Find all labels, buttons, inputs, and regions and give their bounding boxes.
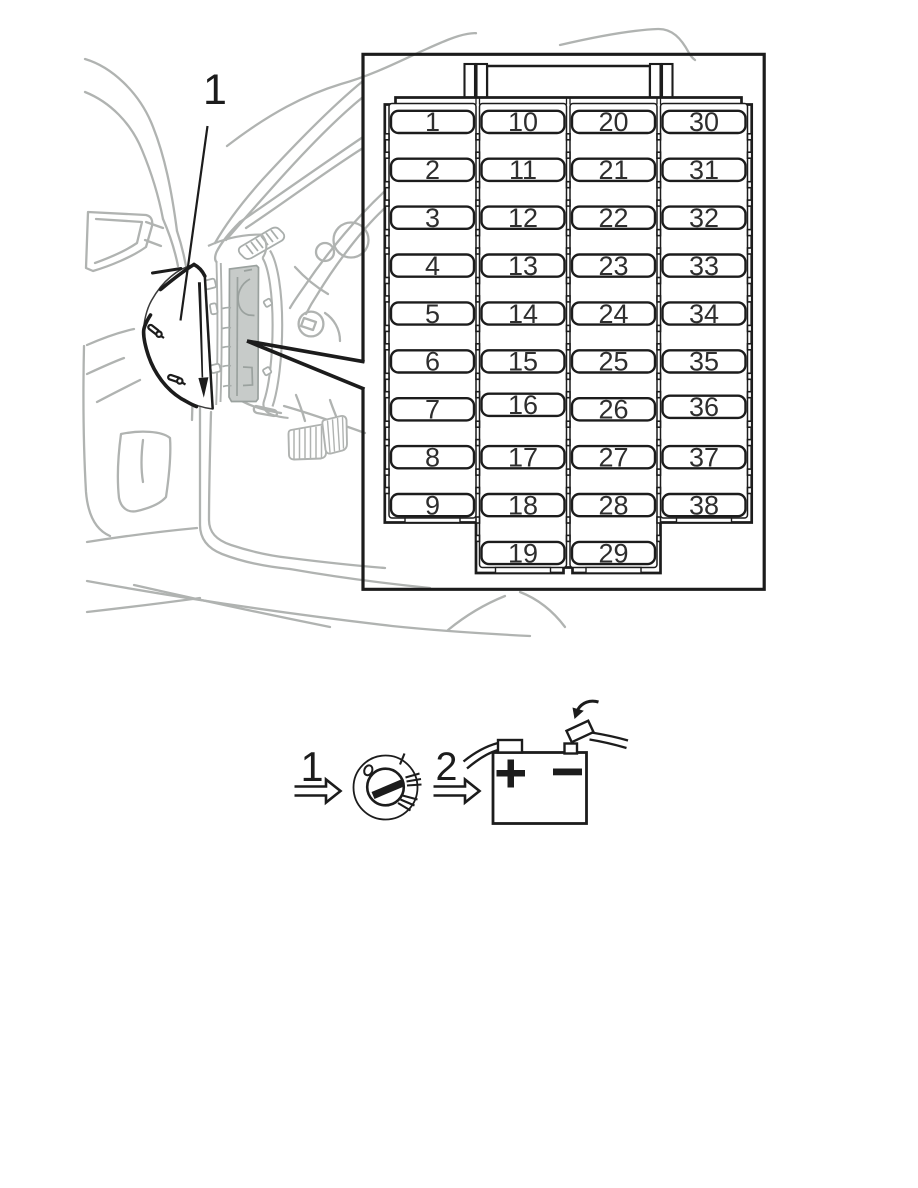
- svg-text:5: 5: [425, 299, 440, 329]
- svg-text:12: 12: [508, 203, 538, 233]
- svg-text:4: 4: [425, 251, 440, 281]
- svg-text:6: 6: [425, 347, 440, 377]
- svg-text:27: 27: [598, 443, 628, 473]
- svg-text:37: 37: [689, 443, 719, 473]
- svg-text:35: 35: [689, 347, 719, 377]
- svg-text:1: 1: [425, 107, 440, 137]
- svg-text:36: 36: [689, 392, 719, 422]
- svg-text:31: 31: [689, 155, 719, 185]
- svg-text:2: 2: [425, 155, 440, 185]
- svg-text:19: 19: [508, 538, 538, 568]
- svg-text:16: 16: [508, 390, 538, 420]
- svg-text:11: 11: [509, 155, 537, 185]
- svg-text:8: 8: [425, 443, 440, 473]
- svg-text:9: 9: [425, 490, 440, 520]
- svg-text:24: 24: [598, 299, 628, 329]
- svg-text:15: 15: [508, 347, 538, 377]
- svg-text:13: 13: [508, 251, 538, 281]
- svg-text:32: 32: [689, 203, 719, 233]
- svg-text:30: 30: [689, 107, 719, 137]
- svg-text:26: 26: [598, 395, 628, 425]
- svg-text:3: 3: [425, 203, 440, 233]
- svg-text:20: 20: [598, 107, 628, 137]
- svg-text:33: 33: [689, 251, 719, 281]
- svg-text:14: 14: [508, 299, 538, 329]
- svg-text:25: 25: [598, 347, 628, 377]
- svg-text:38: 38: [689, 490, 719, 520]
- svg-text:1: 1: [300, 743, 323, 790]
- svg-text:28: 28: [598, 490, 628, 520]
- svg-text:23: 23: [598, 251, 628, 281]
- svg-text:29: 29: [598, 538, 628, 568]
- svg-text:34: 34: [689, 299, 719, 329]
- svg-text:2: 2: [436, 745, 458, 789]
- svg-text:18: 18: [508, 490, 538, 520]
- svg-text:21: 21: [598, 155, 628, 185]
- svg-text:10: 10: [508, 107, 538, 137]
- svg-text:1: 1: [203, 66, 227, 114]
- svg-text:22: 22: [598, 203, 628, 233]
- svg-text:7: 7: [425, 395, 440, 425]
- svg-text:17: 17: [508, 443, 538, 473]
